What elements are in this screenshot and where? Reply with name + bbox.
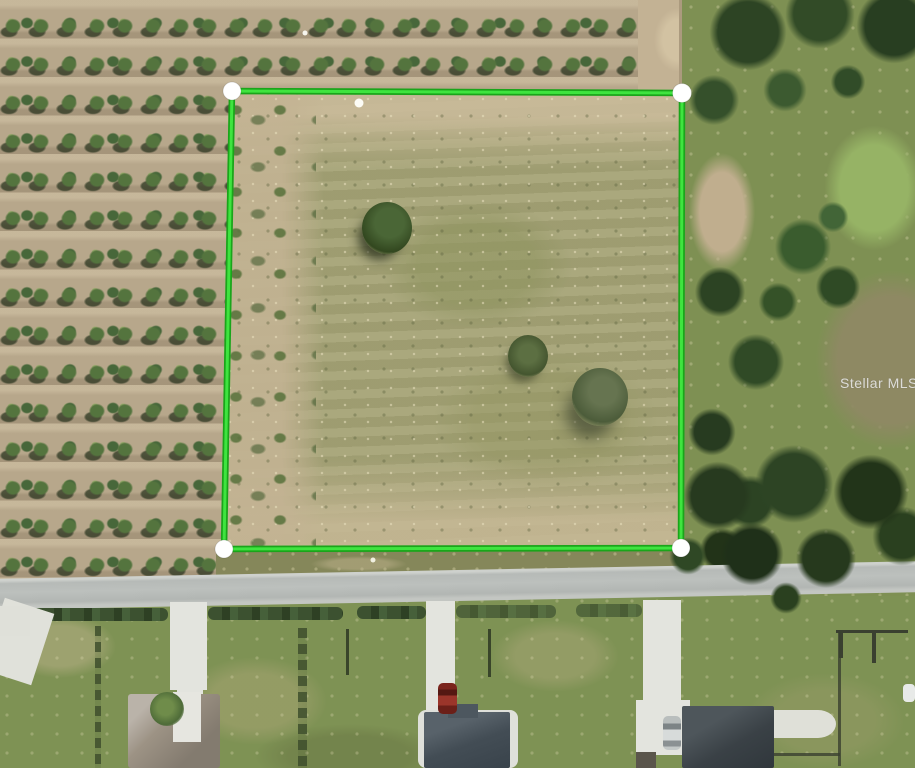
boundary-outline-inner <box>224 91 682 549</box>
corner-marker <box>672 539 690 557</box>
property-boundary-overlay <box>0 0 915 768</box>
ground-dot <box>355 99 364 108</box>
ground-dot <box>303 31 308 36</box>
aerial-photo: Stellar MLS <box>0 0 915 768</box>
mls-watermark: Stellar MLS <box>840 375 915 391</box>
corner-marker <box>673 84 692 103</box>
corner-marker <box>215 540 233 558</box>
corner-marker <box>223 82 241 100</box>
boundary-outline-outer <box>224 91 682 549</box>
ground-dot <box>371 558 376 563</box>
